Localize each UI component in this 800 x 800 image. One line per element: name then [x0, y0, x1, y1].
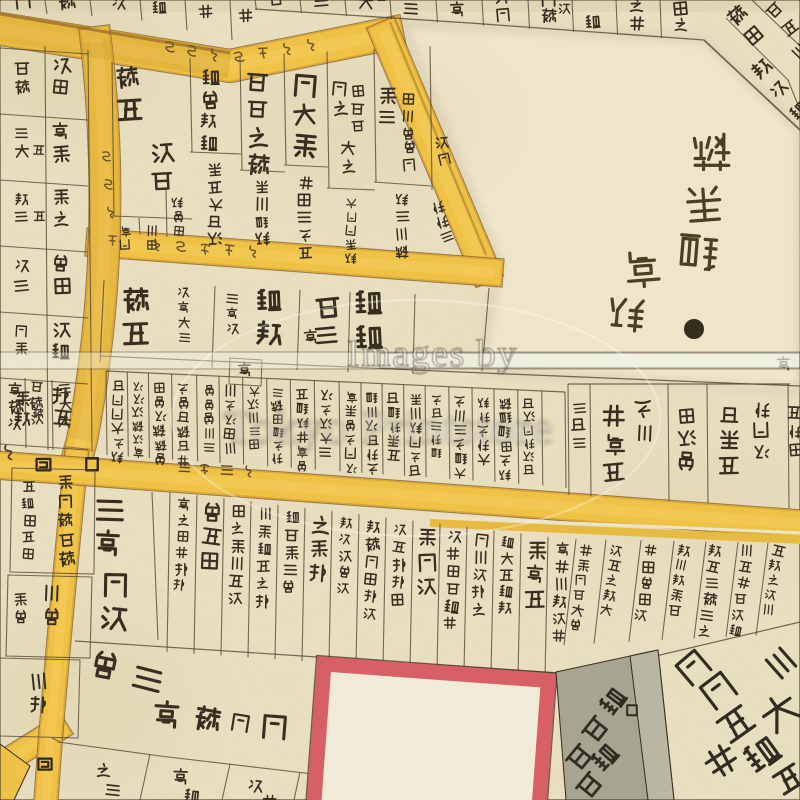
svg-text:Tokyo Printstore: Tokyo Printstore [224, 402, 554, 454]
svg-text:Images by: Images by [347, 333, 518, 375]
